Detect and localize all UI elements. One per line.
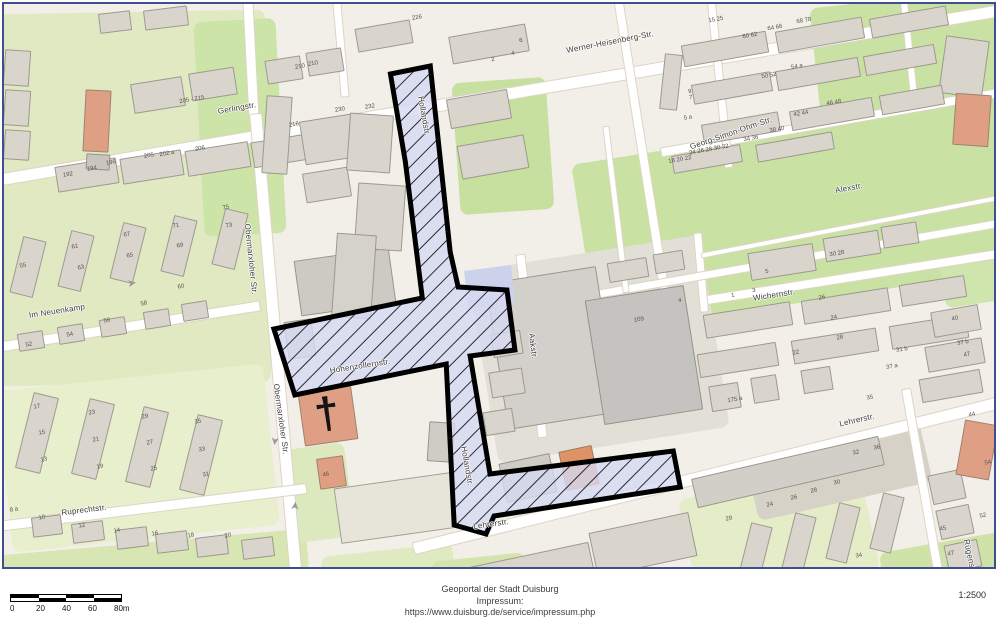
house-number: 63 [77, 264, 85, 271]
house-number: 26 [818, 294, 826, 301]
house-number: 27 [146, 439, 154, 446]
house-number: 46 [322, 471, 330, 478]
house-number: 26 [790, 494, 798, 501]
portal-title: Geoportal der Stadt Duisburg [405, 584, 596, 596]
house-number: 65 [126, 252, 134, 259]
house-number: 71 [172, 222, 180, 229]
scale-label: 80m [114, 604, 130, 613]
house-number: 14 [113, 527, 121, 534]
house-number: 23 [88, 409, 96, 416]
house-number: 17 [33, 403, 41, 410]
house-number: 22 [792, 349, 800, 356]
house-number: 61 [71, 243, 79, 250]
house-number: 40 [951, 315, 959, 322]
house-number: 32 [852, 449, 860, 456]
house-number: 52 [25, 341, 33, 348]
house-number: 55 [19, 262, 27, 269]
house-number: 47 [963, 351, 971, 358]
map-scale-ratio: 1:2500 [958, 590, 986, 600]
house-number: 60 [177, 283, 185, 290]
house-number: 29 [725, 515, 733, 522]
highlight-overlay [4, 4, 994, 567]
house-number: 24 [830, 314, 838, 321]
map-viewport[interactable]: Gerlingstr.Werner-Heisenberg-Str.Georg-S… [2, 2, 996, 569]
scale-label: 20 [36, 604, 45, 613]
house-number: 30 [833, 479, 841, 486]
oneway-arrow-icon: ➤ [268, 436, 280, 446]
scale-bar-labels: 020406080m [10, 604, 160, 616]
house-number: 47 [947, 550, 955, 557]
house-number: 19 [96, 463, 104, 470]
house-number: 28 [810, 487, 818, 494]
geoportal-map-export: Gerlingstr.Werner-Heisenberg-Str.Georg-S… [0, 0, 1000, 623]
house-number: 25 [150, 465, 158, 472]
house-number: 28 [836, 334, 844, 341]
impressum-url[interactable]: https://www.duisburg.de/service/impressu… [405, 607, 596, 619]
house-number: 31 [202, 471, 210, 478]
house-number: 54 [984, 459, 992, 466]
house-number: 75 [222, 204, 230, 211]
house-number: 34 [855, 552, 863, 559]
house-number: 20 [224, 532, 232, 539]
scale-bar: 020406080m [10, 592, 160, 618]
house-number: 56 [103, 317, 111, 324]
house-number: 13 [40, 456, 48, 463]
house-number: 21 [92, 436, 100, 443]
house-number: 16 [151, 530, 159, 537]
house-number: 45 [939, 525, 947, 532]
house-number: 67 [123, 231, 131, 238]
house-number: 36 [873, 444, 881, 451]
house-number: 35 [866, 394, 874, 401]
impressum-label: Impressum: [405, 596, 596, 608]
house-number: 29 [141, 413, 149, 420]
house-number: 52 [979, 512, 987, 519]
house-number: 33 [198, 446, 206, 453]
house-number: 73 [225, 222, 233, 229]
house-number: 12 [78, 522, 86, 529]
house-number: 54 [66, 331, 74, 338]
house-number: 69 [176, 242, 184, 249]
highlight-zone [274, 66, 680, 534]
house-number: 24 [766, 501, 774, 508]
house-number: 44 [968, 411, 976, 418]
oneway-arrow-icon: ➤ [290, 501, 302, 511]
house-number: 58 [140, 300, 148, 307]
oneway-arrow-icon: ➤ [127, 278, 138, 290]
scale-label: 0 [10, 604, 14, 613]
footer-attribution: Geoportal der Stadt Duisburg Impressum: … [405, 584, 596, 619]
house-number: 35 [194, 418, 202, 425]
scale-bar-segments [10, 594, 122, 602]
scale-label: 40 [62, 604, 71, 613]
house-number: 15 [38, 429, 46, 436]
house-number: 18 [187, 532, 195, 539]
house-number: 10 [38, 514, 46, 521]
scale-label: 60 [88, 604, 97, 613]
